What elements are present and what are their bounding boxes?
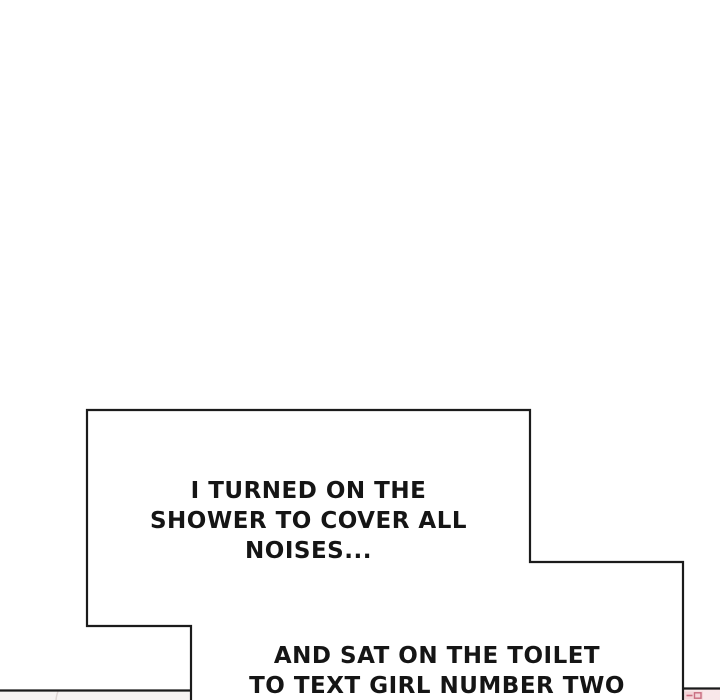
caption-line: TO TEXT GIRL NUMBER TWO <box>191 671 683 700</box>
comic-panel-artwork <box>0 0 720 700</box>
next-panel-left-strip <box>0 692 190 700</box>
speech-bubble-2-text: AND SAT ON THE TOILET TO TEXT GIRL NUMBE… <box>191 641 683 700</box>
caption-line: SHOWER TO COVER ALL <box>87 506 530 536</box>
caption-line: NOISES... <box>87 536 530 566</box>
speech-bubble-1-text: I TURNED ON THE SHOWER TO COVER ALL NOIS… <box>87 476 530 566</box>
comic-page: I TURNED ON THE SHOWER TO COVER ALL NOIS… <box>0 0 720 700</box>
caption-line: AND SAT ON THE TOILET <box>191 641 683 671</box>
caption-line: I TURNED ON THE <box>87 476 530 506</box>
